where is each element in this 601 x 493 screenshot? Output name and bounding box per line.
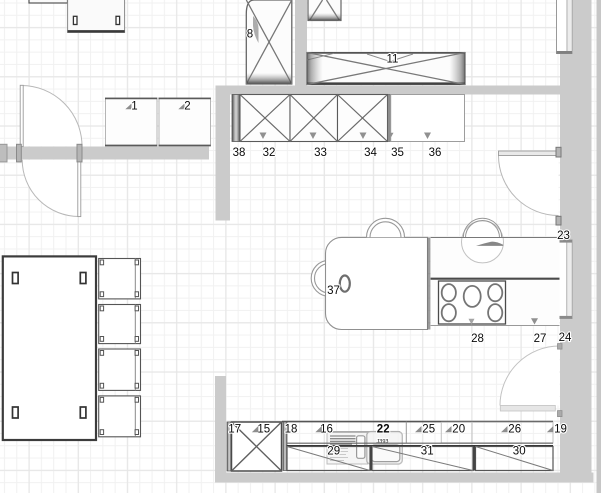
svg-text:28: 28 xyxy=(471,333,484,345)
svg-text:15: 15 xyxy=(257,424,270,436)
svg-text:1: 1 xyxy=(131,101,137,113)
svg-text:35: 35 xyxy=(391,147,404,159)
svg-text:27: 27 xyxy=(534,333,547,345)
svg-text:23: 23 xyxy=(557,230,570,242)
svg-text:2: 2 xyxy=(184,101,190,113)
svg-text:30: 30 xyxy=(513,445,526,457)
svg-text:33: 33 xyxy=(314,147,327,159)
svg-text:36: 36 xyxy=(429,147,442,159)
svg-text:8: 8 xyxy=(247,29,253,41)
svg-text:24: 24 xyxy=(559,332,572,344)
svg-text:16: 16 xyxy=(320,424,333,436)
svg-text:29: 29 xyxy=(327,445,340,457)
svg-text:25: 25 xyxy=(422,424,435,436)
svg-text:31: 31 xyxy=(421,445,434,457)
svg-text:11: 11 xyxy=(387,53,399,65)
svg-text:19: 19 xyxy=(554,424,567,436)
svg-text:18: 18 xyxy=(285,424,298,436)
svg-text:26: 26 xyxy=(508,424,521,436)
svg-text:20: 20 xyxy=(452,424,465,436)
svg-text:34: 34 xyxy=(364,147,377,159)
svg-text:17: 17 xyxy=(228,424,241,436)
svg-text:32: 32 xyxy=(263,147,276,159)
svg-text:38: 38 xyxy=(233,147,246,159)
svg-text:J393: J393 xyxy=(377,439,389,445)
svg-text:37: 37 xyxy=(327,285,340,297)
svg-text:22: 22 xyxy=(377,424,390,436)
